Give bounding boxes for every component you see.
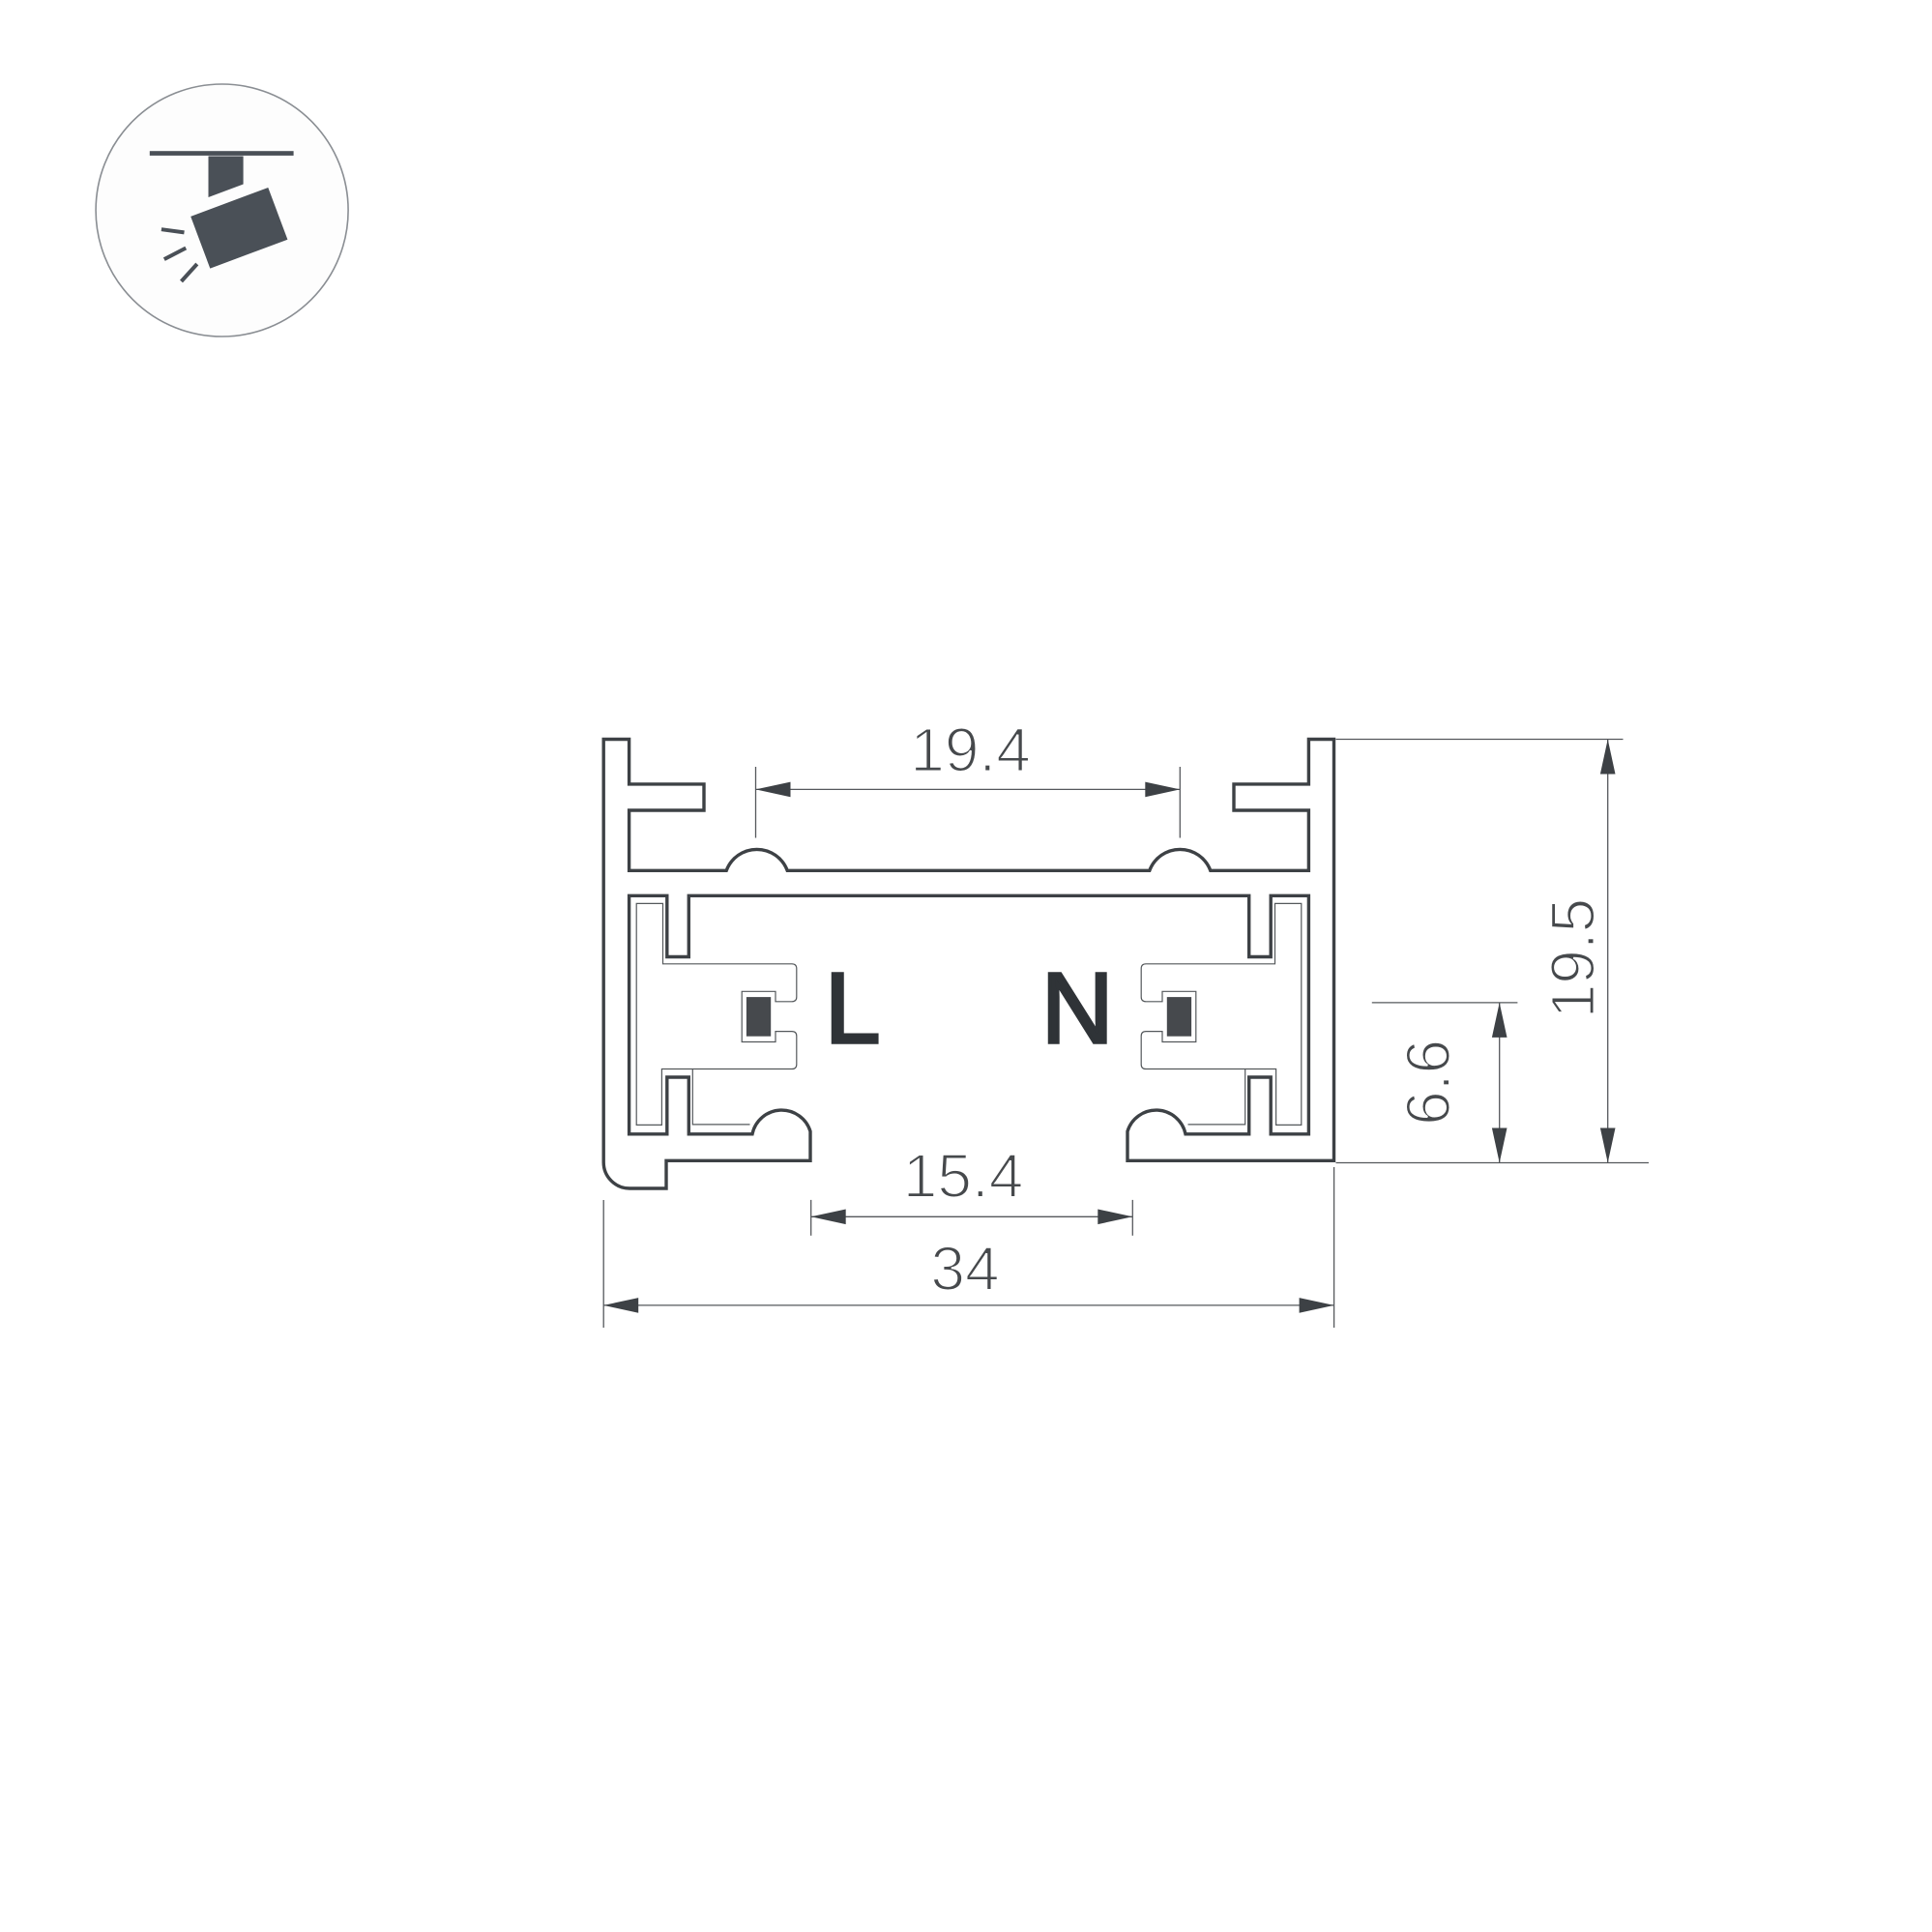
svg-text:L: L <box>825 952 880 1064</box>
svg-text:6.6: 6.6 <box>1393 1039 1463 1126</box>
svg-text:19.4: 19.4 <box>910 716 1031 785</box>
svg-text:N: N <box>1041 952 1113 1064</box>
svg-text:15.4: 15.4 <box>903 1141 1024 1211</box>
svg-text:34: 34 <box>930 1234 999 1303</box>
svg-text:19.5: 19.5 <box>1538 898 1608 1019</box>
